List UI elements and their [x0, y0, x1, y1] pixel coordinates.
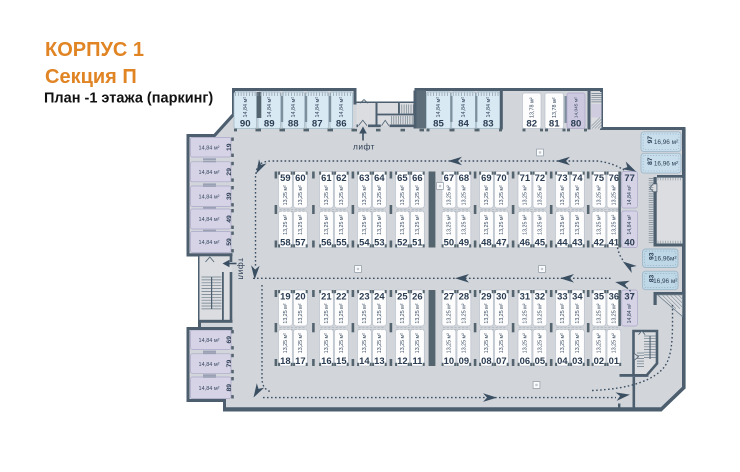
svg-text:62: 62 — [336, 172, 346, 183]
svg-text:26: 26 — [412, 290, 422, 301]
svg-text:48: 48 — [481, 237, 491, 248]
svg-text:50: 50 — [444, 237, 454, 248]
svg-text:КОРПУС 1: КОРПУС 1 — [45, 39, 144, 61]
svg-text:13,25 м²: 13,25 м² — [339, 303, 345, 323]
svg-text:14,84 м²: 14,84 м² — [627, 215, 633, 235]
svg-text:52: 52 — [397, 237, 407, 248]
svg-text:План -1 этажа (паркинг): План -1 этажа (паркинг) — [44, 91, 213, 107]
svg-text:42: 42 — [594, 237, 604, 248]
svg-text:06: 06 — [520, 355, 530, 366]
svg-text:29: 29 — [481, 290, 491, 301]
svg-text:24: 24 — [374, 290, 385, 301]
svg-text:08: 08 — [481, 355, 491, 366]
svg-text:59: 59 — [280, 172, 290, 183]
svg-text:13,25 м²: 13,25 м² — [339, 214, 345, 234]
svg-text:тфил: тфил — [237, 258, 247, 280]
svg-text:13,25 м²: 13,25 м² — [522, 185, 528, 205]
svg-text:13,25 м²: 13,25 м² — [362, 303, 368, 323]
svg-text:37: 37 — [624, 290, 634, 301]
svg-text:14,84 м²: 14,84 м² — [436, 97, 442, 118]
svg-text:31: 31 — [520, 290, 530, 301]
svg-text:57: 57 — [295, 237, 305, 248]
svg-text:97: 97 — [647, 136, 654, 144]
svg-text:49: 49 — [459, 237, 469, 248]
svg-text:Секция П: Секция П — [45, 66, 137, 88]
svg-text:73: 73 — [557, 172, 567, 183]
svg-text:13,25 м²: 13,25 м² — [596, 185, 602, 205]
svg-text:86: 86 — [336, 119, 347, 130]
svg-text:13,25 м²: 13,25 м² — [484, 185, 490, 205]
svg-text:13,25 м²: 13,25 м² — [339, 185, 345, 205]
svg-text:14,84 м²: 14,84 м² — [627, 303, 633, 323]
svg-text:80: 80 — [571, 119, 582, 130]
svg-text:02: 02 — [594, 355, 604, 366]
svg-text:13,25 м²: 13,25 м² — [575, 185, 581, 205]
svg-text:лифт: лифт — [353, 142, 375, 152]
svg-text:12: 12 — [397, 355, 407, 366]
svg-text:13,25 м²: 13,25 м² — [522, 333, 528, 353]
svg-text:88: 88 — [288, 119, 299, 130]
svg-text:51: 51 — [412, 237, 422, 248]
svg-text:77: 77 — [624, 172, 634, 183]
svg-text:61: 61 — [321, 172, 331, 183]
svg-text:13,25 м²: 13,25 м² — [522, 303, 528, 323]
svg-text:13,25 м²: 13,25 м² — [446, 333, 452, 353]
svg-text:14,84 м²: 14,84 м² — [199, 217, 220, 223]
svg-text:14,84 м²: 14,84 м² — [199, 194, 220, 200]
svg-text:18: 18 — [280, 355, 290, 366]
svg-text:32: 32 — [535, 290, 545, 301]
svg-text:44: 44 — [557, 237, 568, 248]
svg-text:49: 49 — [226, 215, 233, 223]
svg-text:16,96м²: 16,96м² — [654, 256, 677, 263]
svg-text:13,25 м²: 13,25 м² — [377, 303, 383, 323]
svg-text:69: 69 — [226, 336, 233, 344]
svg-text:13,25 м²: 13,25 м² — [377, 214, 383, 234]
svg-text:13,78 м²: 13,78 м² — [529, 97, 535, 118]
svg-text:13,25 м²: 13,25 м² — [537, 185, 543, 205]
svg-text:09: 09 — [459, 355, 469, 366]
svg-text:13,25 м²: 13,25 м² — [461, 333, 467, 353]
svg-text:13,25 м²: 13,25 м² — [611, 333, 617, 353]
svg-text:14,84 м²: 14,84 м² — [315, 97, 321, 118]
svg-text:13,78 м²: 13,78 м² — [552, 97, 558, 118]
svg-text:13,25 м²: 13,25 м² — [596, 214, 602, 234]
svg-text:13,25 м²: 13,25 м² — [560, 303, 566, 323]
svg-text:16,96 м²: 16,96 м² — [654, 161, 678, 168]
svg-text:13,25 м²: 13,25 м² — [400, 214, 406, 234]
svg-text:90: 90 — [240, 119, 251, 130]
svg-text:56: 56 — [321, 237, 331, 248]
svg-text:13,25 м²: 13,25 м² — [283, 333, 289, 353]
svg-text:13,25 м²: 13,25 м² — [400, 303, 406, 323]
svg-text:16,96 м²: 16,96 м² — [654, 139, 678, 146]
svg-text:13,25 м²: 13,25 м² — [484, 214, 490, 234]
svg-text:07: 07 — [496, 355, 506, 366]
svg-text:03: 03 — [572, 355, 582, 366]
svg-text:45: 45 — [535, 237, 545, 248]
svg-text:21: 21 — [321, 290, 331, 301]
svg-text:13,25 м²: 13,25 м² — [324, 214, 330, 234]
svg-text:89: 89 — [264, 119, 275, 130]
svg-text:76: 76 — [609, 172, 619, 183]
svg-text:14,84 м²: 14,84 м² — [199, 338, 220, 344]
svg-text:68: 68 — [459, 172, 469, 183]
svg-text:71: 71 — [520, 172, 530, 183]
svg-text:13,25 м²: 13,25 м² — [324, 333, 330, 353]
svg-text:13,25 м²: 13,25 м² — [362, 185, 368, 205]
svg-text:63: 63 — [359, 172, 369, 183]
svg-text:29: 29 — [226, 168, 233, 176]
svg-text:14,84 м²: 14,84 м² — [199, 240, 220, 246]
svg-text:13,25 м²: 13,25 м² — [522, 214, 528, 234]
svg-text:11: 11 — [412, 355, 422, 366]
svg-text:14,84 м²: 14,84 м² — [461, 97, 467, 118]
svg-text:13,25 м²: 13,25 м² — [499, 303, 505, 323]
svg-text:39: 39 — [226, 192, 233, 200]
svg-text:13,25 м²: 13,25 м² — [446, 303, 452, 323]
svg-text:64: 64 — [374, 172, 385, 183]
svg-text:14,84 м²: 14,84 м² — [339, 97, 345, 118]
svg-text:27: 27 — [444, 290, 454, 301]
svg-text:14,84 м²: 14,84 м² — [199, 386, 220, 392]
svg-text:05: 05 — [535, 355, 545, 366]
svg-text:74: 74 — [572, 172, 583, 183]
svg-text:13,25 м²: 13,25 м² — [596, 303, 602, 323]
svg-text:13,25 м²: 13,25 м² — [461, 214, 467, 234]
svg-text:04: 04 — [557, 355, 568, 366]
svg-text:13,25 м²: 13,25 м² — [362, 214, 368, 234]
svg-text:13,25 м²: 13,25 м² — [499, 185, 505, 205]
svg-text:87: 87 — [647, 157, 654, 165]
svg-text:47: 47 — [496, 237, 506, 248]
svg-text:66: 66 — [412, 172, 422, 183]
svg-text:13,25 м²: 13,25 м² — [484, 303, 490, 323]
svg-text:58: 58 — [280, 237, 290, 248]
svg-text:59: 59 — [226, 238, 233, 246]
svg-text:14: 14 — [359, 355, 370, 366]
svg-text:54: 54 — [359, 237, 370, 248]
svg-text:85: 85 — [433, 119, 444, 130]
svg-text:20: 20 — [295, 290, 305, 301]
svg-text:14,84 м²: 14,84 м² — [267, 97, 273, 118]
svg-text:46: 46 — [520, 237, 530, 248]
svg-text:13,25 м²: 13,25 м² — [446, 214, 452, 234]
svg-text:13,25 м²: 13,25 м² — [575, 214, 581, 234]
svg-text:30: 30 — [496, 290, 506, 301]
svg-text:82: 82 — [526, 119, 537, 130]
svg-text:13,25 м²: 13,25 м² — [484, 333, 490, 353]
svg-text:13,25 м²: 13,25 м² — [283, 214, 289, 234]
svg-text:55: 55 — [336, 237, 346, 248]
svg-text:13,25 м²: 13,25 м² — [400, 333, 406, 353]
svg-text:14,84 м²: 14,84 м² — [486, 97, 492, 118]
svg-text:13,25 м²: 13,25 м² — [415, 214, 421, 234]
svg-text:13,25 м²: 13,25 м² — [596, 333, 602, 353]
svg-text:40: 40 — [624, 237, 634, 248]
svg-text:81: 81 — [549, 119, 560, 130]
svg-text:14,84 м²: 14,84 м² — [199, 170, 220, 176]
svg-text:14,045 м²: 14,045 м² — [574, 97, 580, 118]
svg-text:13,25 м²: 13,25 м² — [560, 185, 566, 205]
svg-text:14,84 м²: 14,84 м² — [199, 145, 220, 151]
svg-text:34: 34 — [572, 290, 583, 301]
svg-text:13,25 м²: 13,25 м² — [560, 333, 566, 353]
svg-text:19: 19 — [280, 290, 290, 301]
svg-text:13,25 м²: 13,25 м² — [611, 185, 617, 205]
svg-text:14,84 м²: 14,84 м² — [291, 97, 297, 118]
svg-text:13,25 м²: 13,25 м² — [499, 214, 505, 234]
svg-text:13,25 м²: 13,25 м² — [499, 333, 505, 353]
svg-text:13: 13 — [374, 355, 384, 366]
svg-text:13,25 м²: 13,25 м² — [461, 303, 467, 323]
svg-text:01: 01 — [609, 355, 619, 366]
svg-text:13,25 м²: 13,25 м² — [324, 303, 330, 323]
svg-text:23: 23 — [359, 290, 369, 301]
svg-text:13,25 м²: 13,25 м² — [362, 333, 368, 353]
svg-text:17: 17 — [295, 355, 305, 366]
svg-text:67: 67 — [444, 172, 454, 183]
svg-text:13,25 м²: 13,25 м² — [377, 185, 383, 205]
svg-text:13,25 м²: 13,25 м² — [446, 185, 452, 205]
svg-text:14,84 м²: 14,84 м² — [627, 185, 633, 205]
svg-text:13,25 м²: 13,25 м² — [283, 185, 289, 205]
svg-text:13,25 м²: 13,25 м² — [324, 185, 330, 205]
svg-text:13,25 м²: 13,25 м² — [575, 303, 581, 323]
svg-text:70: 70 — [496, 172, 506, 183]
svg-text:65: 65 — [397, 172, 407, 183]
svg-text:13,25 м²: 13,25 м² — [283, 303, 289, 323]
svg-text:16: 16 — [321, 355, 331, 366]
svg-text:16,96 м²: 16,96 м² — [653, 278, 677, 285]
svg-text:89: 89 — [226, 384, 233, 392]
svg-text:10: 10 — [444, 355, 454, 366]
svg-text:13,25 м²: 13,25 м² — [339, 333, 345, 353]
svg-text:36: 36 — [609, 290, 619, 301]
svg-text:13,25 м²: 13,25 м² — [415, 185, 421, 205]
svg-text:13,25 м²: 13,25 м² — [298, 333, 304, 353]
svg-text:84: 84 — [458, 119, 469, 130]
svg-text:14,84 м²: 14,84 м² — [243, 97, 249, 118]
svg-text:13,25 м²: 13,25 м² — [537, 214, 543, 234]
svg-text:13,25 м²: 13,25 м² — [415, 303, 421, 323]
svg-text:33: 33 — [557, 290, 567, 301]
svg-text:13,25 м²: 13,25 м² — [537, 333, 543, 353]
svg-text:75: 75 — [594, 172, 604, 183]
svg-text:35: 35 — [594, 290, 604, 301]
svg-text:13,25 м²: 13,25 м² — [537, 303, 543, 323]
svg-text:15: 15 — [336, 355, 346, 366]
svg-text:83: 83 — [483, 119, 494, 130]
svg-text:79: 79 — [226, 360, 233, 368]
svg-text:13,25 м²: 13,25 м² — [400, 185, 406, 205]
svg-text:19: 19 — [226, 143, 233, 151]
svg-text:13,25 м²: 13,25 м² — [560, 214, 566, 234]
svg-text:25: 25 — [397, 290, 407, 301]
svg-text:13,25 м²: 13,25 м² — [298, 303, 304, 323]
svg-text:13,25 м²: 13,25 м² — [611, 303, 617, 323]
svg-text:28: 28 — [459, 290, 469, 301]
svg-text:13,25 м²: 13,25 м² — [377, 333, 383, 353]
svg-text:87: 87 — [312, 119, 323, 130]
svg-text:60: 60 — [295, 172, 305, 183]
svg-text:53: 53 — [374, 237, 384, 248]
svg-text:14,84 м²: 14,84 м² — [199, 362, 220, 368]
svg-text:13,25 м²: 13,25 м² — [298, 185, 304, 205]
svg-text:43: 43 — [572, 237, 582, 248]
svg-text:13,25 м²: 13,25 м² — [415, 333, 421, 353]
svg-text:13,25 м²: 13,25 м² — [298, 214, 304, 234]
svg-text:72: 72 — [535, 172, 545, 183]
svg-text:13,25 м²: 13,25 м² — [575, 333, 581, 353]
svg-text:13,25 м²: 13,25 м² — [461, 185, 467, 205]
svg-text:13,25 м²: 13,25 м² — [611, 214, 617, 234]
svg-text:41: 41 — [609, 237, 619, 248]
svg-text:22: 22 — [336, 290, 346, 301]
svg-text:69: 69 — [481, 172, 491, 183]
